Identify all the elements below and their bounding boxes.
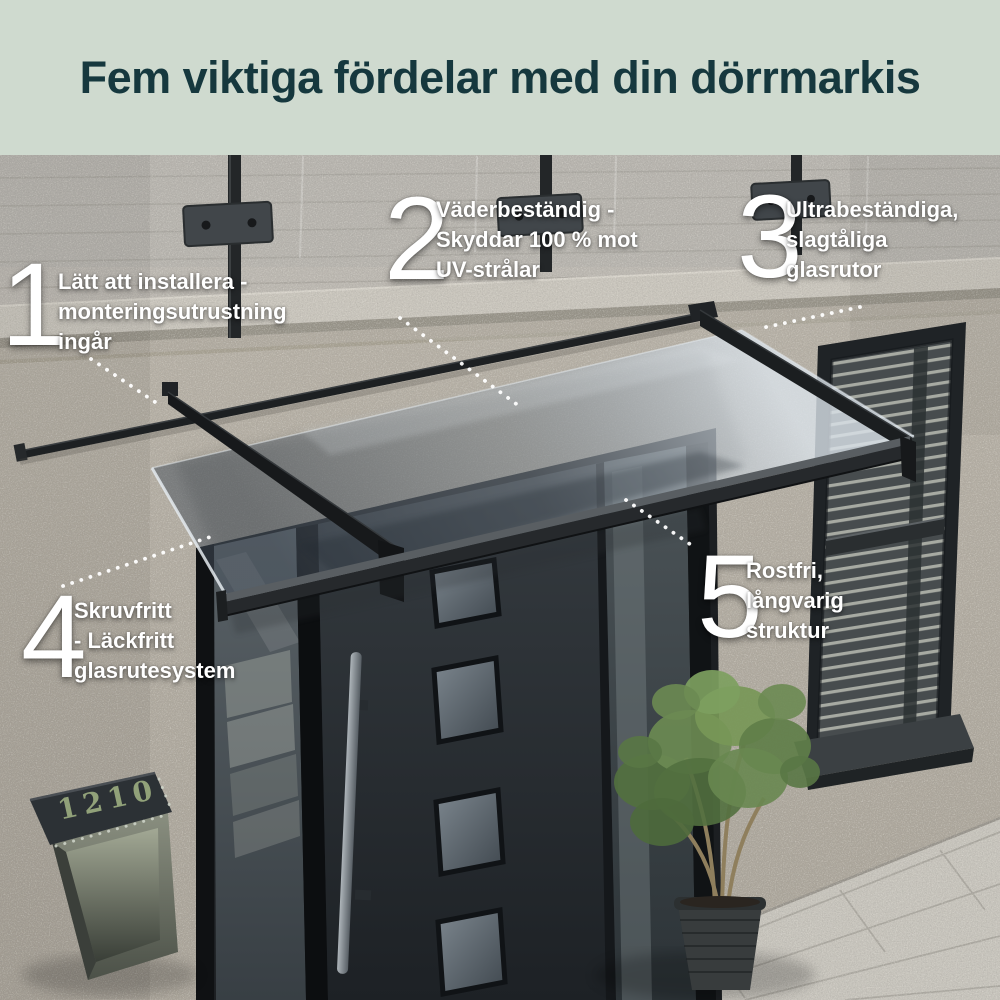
benefit-2-text: Väderbeständig - Skyddar 100 % mot UV-st… [436,195,638,285]
infographic: Fem viktiga fördelar med din dörrmarkis … [0,0,1000,1000]
header-band: Fem viktiga fördelar med din dörrmarkis [0,0,1000,155]
page-title: Fem viktiga fördelar med din dörrmarkis [80,52,921,104]
benefit-1-line: Lätt att installera - [58,267,287,297]
canopy-front-end-cap [900,436,916,482]
benefit-2-line: Väderbeständig - [436,195,638,225]
benefit-5-text: Rostfri, långvarig struktur [746,556,844,646]
benefit-1-line: ingår [58,327,287,357]
benefit-4-text: Skruvfritt - Läckfritt glasrutesystem [74,596,235,686]
benefit-1-text: Lätt att installera - monteringsutrustni… [58,267,287,357]
benefit-1-number: 1 [1,246,67,364]
benefit-3-line: Ultrabeständiga, [786,195,958,225]
benefit-4-line: Skruvfritt [74,596,235,626]
benefit-3-line: glasrutor [786,255,958,285]
benefit-4-line: glasrutesystem [74,656,235,686]
benefit-3-text: Ultrabeständiga, slagtåliga glasrutor [786,195,958,285]
railing-bracket [183,202,273,247]
benefit-1-line: monteringsutrustning [58,297,287,327]
benefit-2-line: Skyddar 100 % mot [436,225,638,255]
benefit-3-line: slagtåliga [786,225,958,255]
benefit-5-line: Rostfri, [746,556,844,586]
benefit-5-line: struktur [746,616,844,646]
benefit-5-line: långvarig [746,586,844,616]
benefit-2-line: UV-strålar [436,255,638,285]
benefit-4-line: - Läckfritt [74,626,235,656]
